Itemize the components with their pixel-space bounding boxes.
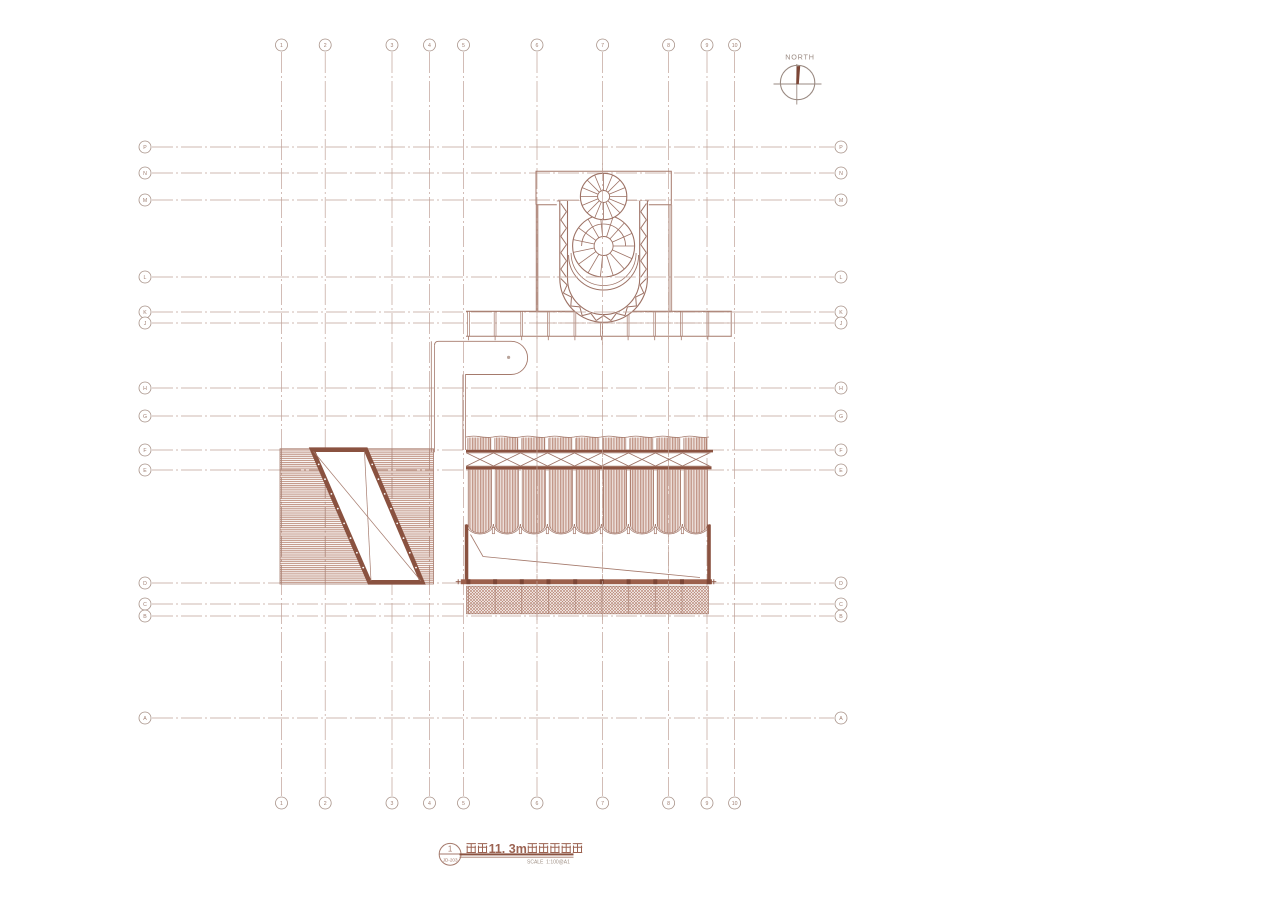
svg-text:J: J — [840, 321, 843, 327]
svg-text:10: 10 — [732, 43, 738, 49]
svg-text:D: D — [839, 581, 843, 587]
svg-text:N: N — [839, 171, 843, 177]
svg-text:E: E — [839, 468, 843, 474]
svg-text:E: E — [143, 468, 147, 474]
svg-text:A: A — [839, 716, 843, 722]
svg-text:9: 9 — [706, 43, 709, 49]
svg-text:F: F — [143, 448, 146, 454]
svg-text:6: 6 — [536, 43, 539, 49]
svg-text:5: 5 — [462, 43, 465, 49]
svg-text:C: C — [143, 602, 147, 608]
svg-text:N: N — [143, 171, 147, 177]
svg-text:C: C — [839, 602, 843, 608]
svg-text:L: L — [840, 275, 843, 281]
svg-text:5: 5 — [462, 801, 465, 807]
svg-text:4: 4 — [428, 43, 431, 49]
svg-text:1: 1 — [280, 43, 283, 49]
svg-text:J: J — [144, 321, 147, 327]
svg-text:10: 10 — [732, 801, 738, 807]
svg-text:P: P — [839, 145, 843, 151]
svg-text:6: 6 — [536, 801, 539, 807]
svg-text:K: K — [839, 310, 843, 316]
svg-text:1: 1 — [280, 801, 283, 807]
svg-text:G: G — [143, 414, 147, 420]
svg-text:B: B — [143, 614, 147, 620]
svg-text:F: F — [839, 448, 842, 454]
svg-text:3: 3 — [391, 801, 394, 807]
svg-text:H: H — [839, 386, 843, 392]
svg-text:8: 8 — [667, 43, 670, 49]
svg-text:SCALE 1:100@A1: SCALE 1:100@A1 — [527, 859, 570, 865]
svg-text:3: 3 — [391, 43, 394, 49]
svg-text:B: B — [839, 614, 843, 620]
svg-text:L: L — [144, 275, 147, 281]
svg-text:D: D — [143, 581, 147, 587]
svg-text:7: 7 — [601, 43, 604, 49]
svg-text:G: G — [839, 414, 843, 420]
svg-text:JD-203: JD-203 — [443, 858, 458, 863]
svg-text:9: 9 — [706, 801, 709, 807]
svg-text:A: A — [143, 716, 147, 722]
svg-text:NORTH: NORTH — [785, 53, 814, 62]
svg-text:H: H — [143, 386, 147, 392]
svg-text:M: M — [839, 198, 843, 204]
svg-text:7: 7 — [601, 801, 604, 807]
svg-text:P: P — [143, 145, 147, 151]
svg-text:M: M — [143, 198, 147, 204]
svg-text:1: 1 — [448, 845, 453, 854]
svg-text:2: 2 — [324, 801, 327, 807]
svg-text:K: K — [143, 310, 147, 316]
svg-text:2: 2 — [324, 43, 327, 49]
svg-text:8: 8 — [667, 801, 670, 807]
svg-text:4: 4 — [428, 801, 431, 807]
svg-text:11. 3m: 11. 3m — [489, 842, 527, 856]
